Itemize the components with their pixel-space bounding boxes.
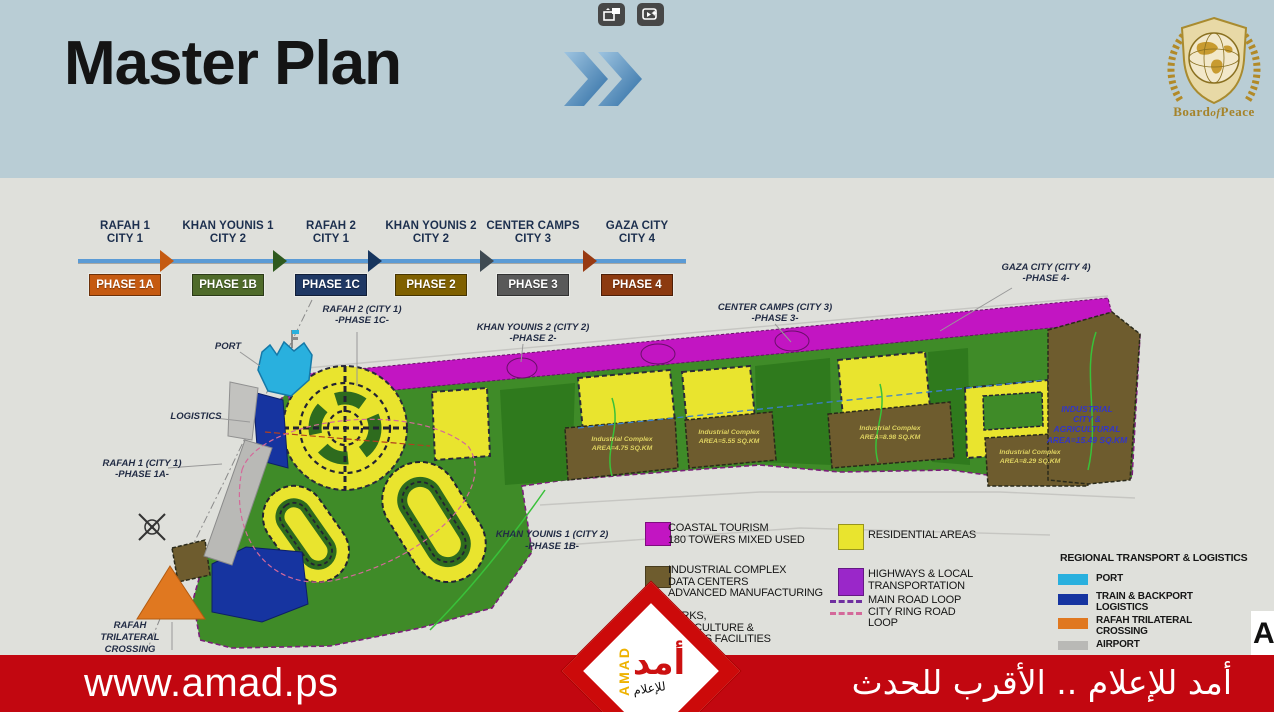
legend-rafah-line2: CROSSING: [1096, 627, 1192, 638]
legend-industrial-line3: ADVANCED MANUFACTURING: [668, 588, 823, 600]
map-label-rafah-crossing3: CROSSING: [105, 644, 156, 655]
industrial-area-label: Industrial Complex: [591, 436, 653, 443]
legend-swatch-residential: [838, 524, 864, 550]
industrial-area-value: AREA=5.55 SQ.KM: [698, 438, 760, 445]
map-label-gazacity-phase: -PHASE 4-: [1023, 273, 1070, 284]
legend-industrial-line1: INDUSTRIAL COMPLEX: [668, 565, 823, 577]
legend-swatch-port: [1058, 574, 1088, 585]
legend-roads-line1: MAIN ROAD LOOP: [868, 595, 961, 607]
industrial-area-label: Industrial Complex: [999, 449, 1061, 456]
map-label-rafah-crossing2: TRILATERAL: [101, 632, 160, 643]
map-label-port: PORT: [215, 341, 242, 352]
legend-roads-line3: LOOP: [868, 618, 961, 630]
ticker-website-url: www.amad.ps: [84, 655, 338, 712]
legend-swatch-highways: [838, 568, 864, 596]
legend-highways-line1: HIGHWAYS & LOCAL: [868, 569, 973, 581]
amad-logo-inner: AMAD أمد للإعلام: [603, 623, 699, 712]
industrial-area-value: AREA=8.29 SQ.KM: [999, 458, 1061, 465]
legend-swatch-train: [1058, 594, 1088, 605]
corner-logo-partial: Al: [1251, 611, 1274, 657]
green-block: [500, 383, 575, 485]
legend-rafah: RAFAH TRILATERAL CROSSING: [1096, 616, 1192, 637]
legend-swatch-airport: [1058, 641, 1088, 650]
corner-logo-text: Al: [1251, 617, 1274, 650]
legend-coastal-line1: COASTAL TOURISM: [668, 523, 805, 535]
legend-coastal-line2: 180 TOWERS MIXED USED: [668, 535, 805, 547]
legend-rafah-line1: RAFAH TRILATERAL: [1096, 616, 1192, 627]
industrial-city-label4: AREA=15.49 SQ.KM: [1046, 435, 1128, 445]
legend-dash-ring-road: [830, 612, 862, 615]
legend-residential: RESIDENTIAL AREAS: [868, 530, 976, 542]
map-label-centercamps: CENTER CAMPS (CITY 3): [718, 302, 832, 313]
map-label-centercamps-phase: -PHASE 3-: [752, 313, 799, 324]
map-label-gazacity: GAZA CITY (CITY 4): [1001, 262, 1090, 273]
legend-airport: AIRPORT: [1096, 640, 1140, 651]
map-label-rafah2: RAFAH 2 (CITY 1): [322, 304, 401, 315]
gray-strip: [228, 382, 258, 440]
legend-dash-main-road: [830, 600, 862, 603]
legend-swatch-rafah: [1058, 618, 1088, 629]
industrial-city-label3: AGRICULTURAL: [1053, 424, 1121, 434]
map-label-rafah1: RAFAH 1 (CITY 1): [102, 458, 181, 469]
legend-highways: HIGHWAYS & LOCAL TRANSPORTATION: [868, 569, 973, 592]
legend-train-line2: LOGISTICS: [1096, 603, 1193, 614]
legend-regional-header: REGIONAL TRANSPORT & LOGISTICS: [1060, 552, 1247, 564]
amad-brand-arabic: أمد: [633, 648, 685, 678]
broadcast-frame: Master Plan BoardofPeace RAFAH 1: [0, 0, 1274, 712]
map-label-khanyounis2: KHAN YOUNIS 2 (CITY 2): [477, 322, 590, 333]
map-label-rafah-crossing: RAFAH: [114, 620, 148, 631]
legend-coastal: COASTAL TOURISM 180 TOWERS MIXED USED: [668, 523, 805, 546]
map-label-rafah2-phase: -PHASE 1C-: [335, 315, 389, 326]
industrial-area-value: AREA=8.98 SQ.KM: [859, 434, 921, 441]
map-label-khanyounis1: KHAN YOUNIS 1 (CITY 2): [496, 529, 609, 540]
industrial-city-label1: INDUSTRIAL: [1061, 404, 1112, 414]
legend-port: PORT: [1096, 574, 1123, 585]
map-label-khanyounis1-phase: -PHASE 1B-: [525, 541, 579, 552]
ticker-slogan-arabic: أمد للإعلام .. الأقرب للحدث: [852, 655, 1232, 712]
legend-roads: MAIN ROAD LOOP CITY RING ROAD LOOP: [868, 595, 961, 630]
industrial-city-label2: CITY &: [1073, 414, 1101, 424]
amad-brand-latin: AMAD: [617, 646, 631, 696]
map-label-logistics: LOGISTICS: [170, 411, 222, 422]
legend-industrial: INDUSTRIAL COMPLEX DATA CENTERS ADVANCED…: [668, 565, 823, 600]
airport-symbol-icon: [139, 514, 165, 540]
legend-train: TRAIN & BACKPORT LOGISTICS: [1096, 592, 1193, 613]
industrial-area-value: AREA=4.75 SQ.KM: [591, 445, 653, 452]
green-inner-block: [983, 392, 1043, 430]
map-label-khanyounis2-phase: -PHASE 2-: [510, 333, 557, 344]
industrial-area-label: Industrial Complex: [859, 425, 921, 432]
legend-train-line1: TRAIN & BACKPORT: [1096, 592, 1193, 603]
legend-highways-line2: TRANSPORTATION: [868, 581, 973, 593]
map-label-rafah1-phase: -PHASE 1A-: [115, 469, 169, 480]
industrial-area-label: Industrial Complex: [698, 429, 760, 436]
